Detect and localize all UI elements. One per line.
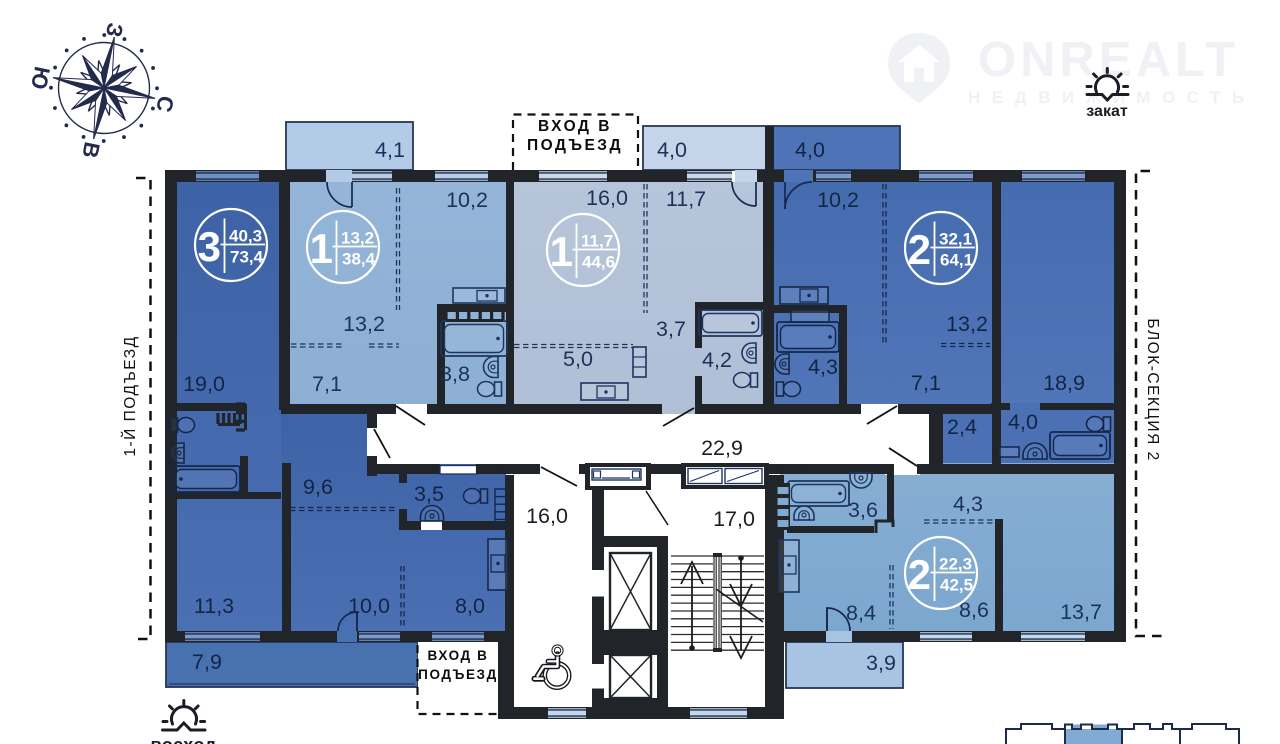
svg-text:4,3: 4,3 — [953, 492, 983, 516]
svg-text:32,1: 32,1 — [939, 230, 972, 249]
svg-text:3,5: 3,5 — [414, 482, 444, 506]
svg-text:10,2: 10,2 — [446, 188, 488, 212]
svg-text:22,9: 22,9 — [701, 436, 743, 460]
svg-text:38,4: 38,4 — [342, 250, 376, 269]
svg-text:3,8: 3,8 — [440, 362, 470, 386]
svg-text:42,5: 42,5 — [940, 576, 973, 595]
svg-text:8,0: 8,0 — [455, 594, 485, 618]
svg-text:40,3: 40,3 — [229, 227, 262, 246]
svg-text:ПОДЪЕЗД: ПОДЪЕЗД — [527, 137, 623, 154]
svg-text:3,7: 3,7 — [656, 317, 686, 341]
svg-text:7,9: 7,9 — [192, 650, 222, 674]
svg-text:1-Й ПОДЪЕЗД: 1-Й ПОДЪЕЗД — [121, 335, 139, 456]
svg-text:16,0: 16,0 — [586, 186, 628, 210]
svg-text:3,9: 3,9 — [866, 651, 896, 675]
svg-text:8,4: 8,4 — [846, 601, 876, 625]
svg-text:11,7: 11,7 — [666, 187, 706, 211]
svg-text:13,2: 13,2 — [946, 312, 988, 336]
svg-text:БЛОК-СЕКЦИЯ 2: БЛОК-СЕКЦИЯ 2 — [1144, 318, 1161, 461]
svg-text:3: 3 — [198, 223, 221, 270]
svg-text:7,1: 7,1 — [312, 372, 342, 396]
svg-text:13,2: 13,2 — [343, 312, 385, 336]
svg-text:10,2: 10,2 — [817, 188, 859, 212]
svg-text:17,0: 17,0 — [713, 507, 755, 531]
svg-text:4,0: 4,0 — [1008, 410, 1038, 434]
svg-text:11,7: 11,7 — [581, 232, 613, 251]
svg-text:2: 2 — [908, 551, 931, 598]
svg-text:13,2: 13,2 — [341, 229, 374, 248]
svg-text:закат: закат — [1086, 103, 1128, 120]
svg-text:4,1: 4,1 — [375, 138, 405, 162]
svg-text:ПОДЪЕЗД: ПОДЪЕЗД — [418, 667, 498, 682]
svg-text:73,4: 73,4 — [230, 248, 264, 267]
svg-text:44,6: 44,6 — [582, 253, 615, 272]
svg-text:4,3: 4,3 — [808, 355, 838, 379]
svg-text:10,0: 10,0 — [348, 594, 390, 618]
svg-text:ВХОД В: ВХОД В — [428, 648, 489, 663]
svg-text:18,9: 18,9 — [1043, 371, 1085, 395]
svg-text:3,6: 3,6 — [848, 498, 878, 522]
svg-text:4,0: 4,0 — [657, 138, 687, 162]
svg-text:1: 1 — [310, 225, 333, 272]
svg-text:9,6: 9,6 — [303, 475, 333, 499]
svg-text:1: 1 — [550, 228, 573, 275]
svg-text:ВХОД В: ВХОД В — [538, 118, 612, 135]
svg-text:11,3: 11,3 — [194, 594, 234, 618]
svg-text:64,1: 64,1 — [940, 251, 973, 270]
svg-text:22,3: 22,3 — [939, 555, 972, 574]
svg-text:2,4: 2,4 — [947, 415, 977, 439]
svg-text:2: 2 — [908, 226, 931, 273]
svg-text:13,7: 13,7 — [1060, 600, 1102, 624]
svg-text:7,1: 7,1 — [911, 371, 941, 395]
svg-text:4,2: 4,2 — [702, 348, 732, 372]
svg-text:5,0: 5,0 — [563, 347, 593, 371]
svg-text:восход: восход — [150, 735, 216, 744]
svg-text:16,0: 16,0 — [526, 504, 568, 528]
svg-text:4,0: 4,0 — [795, 138, 825, 162]
svg-text:19,0: 19,0 — [183, 372, 225, 396]
svg-text:ONREALT: ONREALT — [978, 33, 1239, 87]
